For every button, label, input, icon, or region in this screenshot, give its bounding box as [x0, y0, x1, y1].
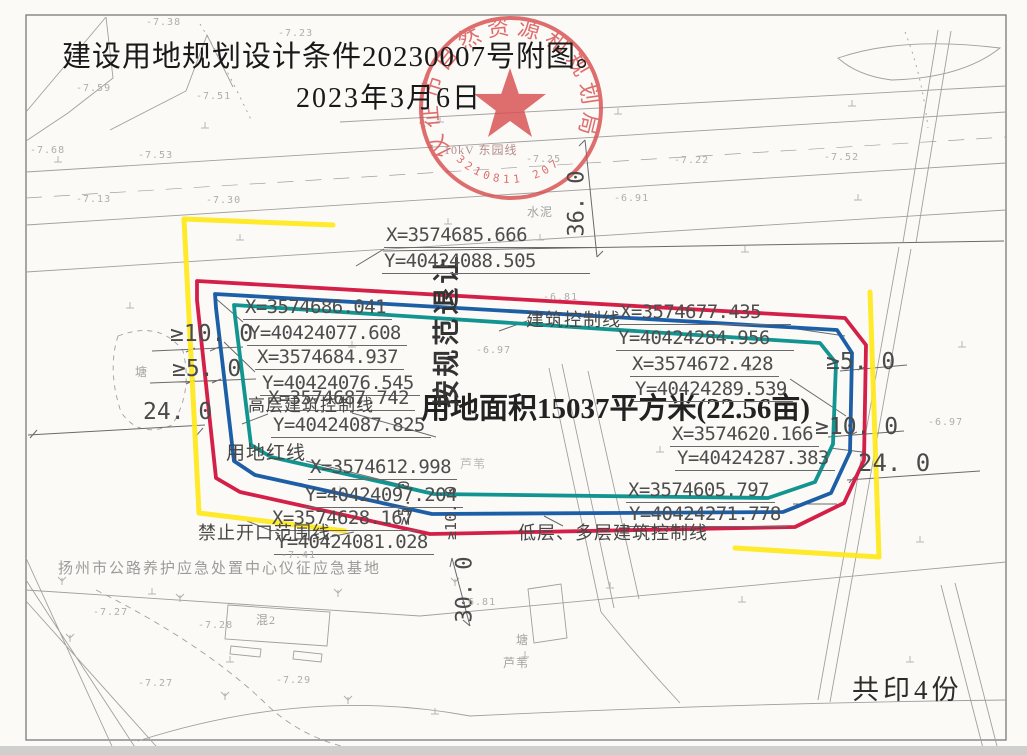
sheet-title: 建设用地规划设计条件20230007号附图。 [62, 42, 606, 72]
dimension-leader-lines [28, 140, 1004, 626]
elevation-label: -7.27 [93, 608, 128, 619]
elevation-label: -7.27 [138, 679, 173, 690]
coord-x-2: X=3574684.937 [255, 348, 404, 370]
elevation-label: -6.97 [928, 418, 963, 429]
coord-y-7: Y=40424289.539 [633, 380, 793, 402]
facility-name-label: 扬州市公路养护应急处置中心仪征应急基地 [58, 562, 381, 578]
coord-y-6: Y=40424284.956 [616, 329, 794, 351]
coord-y-8: Y=40424287.383 [675, 449, 835, 471]
elevation-label: -7.28 [198, 621, 233, 632]
coord-x-8: X=3574620.166 [670, 425, 819, 447]
elevation-label: -7.51 [196, 92, 231, 103]
coord-y-1: Y=40424077.608 [247, 324, 407, 346]
pond-label-bottom: 塘 [516, 634, 529, 647]
pond-label-left: 塘 [135, 366, 148, 379]
print-count-note: 共印4份 [852, 676, 963, 704]
scanned-plan-sheet: 仪征市自然资源和规划局 3210811 2070 建设用地规划设计条件20230… [0, 0, 1027, 755]
coord-y-3: Y=40424087.825 [271, 416, 431, 438]
reed-label-bottom: 芦苇 [503, 657, 529, 670]
legend-land-redline: 用地红线 [226, 444, 306, 464]
dim-right-24: 24. 0 [858, 451, 930, 476]
site-plan-drawing: 仪征市自然资源和规划局 3210811 2070 [0, 0, 1027, 755]
elevation-label: -6.81 [543, 293, 578, 304]
coord-x-1: X=3574686.041 [243, 298, 392, 320]
elevation-label: -7.23 [278, 29, 313, 40]
elevation-label: -6.97 [476, 346, 511, 357]
dim-mid-10: ≥10. 0 [444, 478, 460, 548]
elevation-label: -7.68 [30, 146, 65, 157]
reed-label-mid: 芦苇 [460, 458, 486, 471]
coord-x-9: X=3574605.797 [626, 481, 775, 503]
coord-x-0: X=3574685.666 [384, 226, 592, 248]
elevation-label: -7.41 [281, 551, 316, 562]
legend-no-opening: 禁止开口范围线 [198, 524, 331, 543]
dim-road-width-36: 36. 0 [565, 156, 588, 252]
seal-star-icon [474, 68, 546, 137]
elevation-label: -7.22 [674, 156, 709, 167]
power-line-label: 10kV 东园线 [444, 144, 517, 157]
cement-label: 水泥 [527, 206, 553, 219]
elevation-label: -6.91 [614, 194, 649, 205]
dim-left-upper: ≥10. 0 [170, 322, 253, 346]
dim-right-lower: ≥10. 0 [815, 415, 898, 439]
elevation-label: -6.81 [461, 598, 496, 609]
coord-x-6: X=3574677.435 [618, 303, 791, 325]
coord-x-7: X=3574672.428 [630, 355, 779, 377]
coord-x-4: X=3574612.998 [308, 458, 457, 480]
elevation-label: -7.13 [76, 195, 111, 206]
elevation-label: -7.30 [206, 196, 241, 207]
legend-lowrise-control: 低层、多层建筑控制线 [518, 524, 708, 543]
building-label: 混2 [256, 614, 276, 627]
elevation-label: -7.38 [146, 18, 181, 29]
elevation-label: -7.29 [276, 676, 311, 687]
dim-bottom-30: 30. 0 [453, 542, 476, 638]
dim-left-24: 24. 0 [143, 400, 212, 424]
sheet-date: 2023年3月6日 [296, 84, 482, 113]
coord-y-4: Y=40424097.204 [303, 486, 463, 508]
dim-left-lower: ≥5. 0 [172, 357, 241, 381]
coord-y-0: Y=40424088.505 [382, 252, 590, 274]
legend-highrise-control: 高层建筑控制线 [248, 397, 374, 415]
scan-edge-band [0, 746, 1027, 755]
dim-mid-5: ≥5. 0 [397, 473, 413, 533]
elevation-label: -7.25 [526, 155, 561, 166]
dim-right-upper: ≥5. 0 [826, 350, 895, 374]
legend-building-control: 建筑控制线 [526, 311, 621, 330]
elevation-label: -7.53 [138, 151, 173, 162]
elevation-label: -7.52 [824, 153, 859, 164]
elevation-label: -7.59 [76, 84, 111, 95]
